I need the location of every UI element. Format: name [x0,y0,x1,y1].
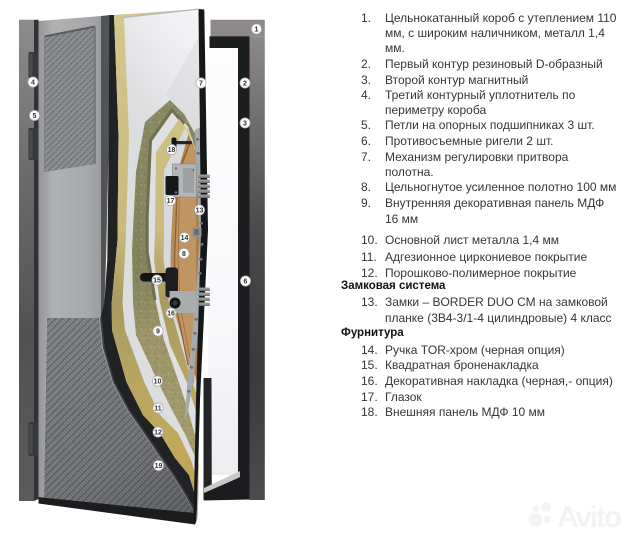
svg-text:9: 9 [156,329,160,336]
svg-text:15: 15 [153,278,161,285]
svg-text:18: 18 [168,147,176,154]
svg-text:2: 2 [243,81,247,88]
svg-text:5: 5 [33,113,37,120]
svg-text:7: 7 [199,81,203,88]
svg-text:4: 4 [31,80,35,87]
svg-text:16: 16 [167,311,175,318]
svg-text:11: 11 [154,406,162,413]
svg-text:14: 14 [181,235,189,242]
svg-text:13: 13 [196,208,204,215]
svg-text:6: 6 [244,279,248,286]
svg-text:3: 3 [243,121,247,128]
svg-text:12: 12 [154,430,162,437]
svg-text:17: 17 [167,198,175,205]
svg-text:1: 1 [255,27,259,34]
svg-text:10: 10 [154,379,162,386]
svg-text:8: 8 [182,251,186,258]
svg-text:19: 19 [155,463,163,470]
